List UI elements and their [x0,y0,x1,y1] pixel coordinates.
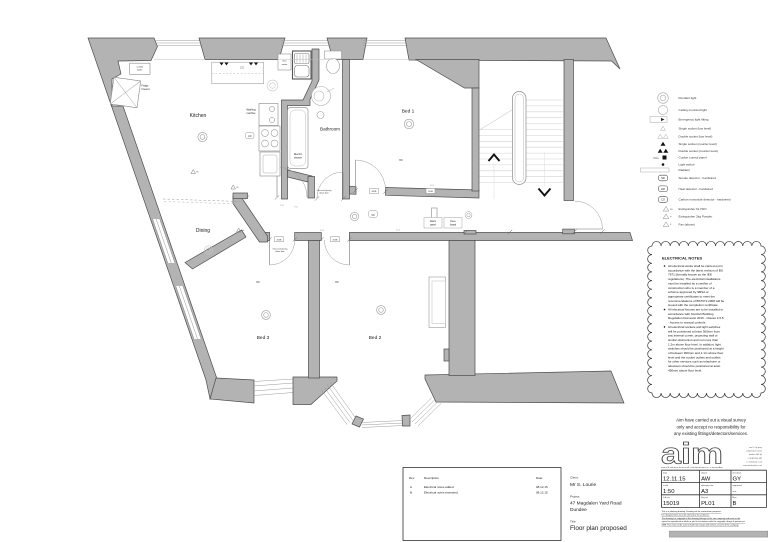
svg-text:for other services such as tel: for other services such as telephone or [668,360,721,364]
svg-text:WOB: WOB [372,191,377,193]
svg-text:SD: SD [661,176,665,180]
svg-text:Extinguisher 2kg Powder: Extinguisher 2kg Powder [679,215,713,219]
svg-text:PL01: PL01 [701,501,715,507]
svg-text:drawing size: drawing size [701,484,714,487]
svg-text:board: board [450,224,457,227]
svg-text:HD: HD [661,187,665,191]
svg-text:47 Magdalen Yard Road: 47 Magdalen Yard Road [570,501,622,507]
svg-text:All electrical works shall be: All electrical works shall be carried ou… [668,264,723,268]
svg-text:unit 3, city quay: unit 3, city quay [749,446,762,449]
svg-text:B: B [410,491,412,495]
svg-text:panel: panel [430,224,436,227]
svg-text:www.aimdundee.co.uk: www.aimdundee.co.uk [743,465,762,467]
svg-text:Date: Date [536,476,543,480]
svg-text:aim: aim [661,438,723,471]
svg-text:Bed 2: Bed 2 [369,335,382,341]
svg-text:Electrical notes amended.: Electrical notes amended. [424,491,459,495]
svg-text:SO/B: SO/B [277,239,282,241]
svg-text:BD: BD [399,158,403,162]
svg-text:Bed 3: Bed 3 [257,335,270,341]
svg-text:ELECTRICAL NOTES: ELECTRICAL NOTES [662,256,702,261]
svg-text:Title:: Title: [570,520,577,524]
svg-text:copied or reproduced in whole: copied or reproduced in whole or part in… [662,520,746,523]
svg-text:If in disagreement, must be re: If in disagreement, must be referred to … [662,513,710,516]
svg-text:This is a planning drawing. Dr: This is a planning drawing. Drawing not … [662,510,722,513]
svg-text:above door: above door [275,250,285,253]
svg-text:Bed 1: Bed 1 [402,109,415,115]
svg-text:CCo: CCo [653,156,659,160]
svg-text:Rev: Rev [409,476,415,480]
svg-text:t. 01382 564 987: t. 01382 564 987 [748,457,762,460]
svg-text:Dining: Dining [196,228,210,234]
svg-text:Pendant light: Pendant light [679,96,697,100]
svg-text:08.12.15: 08.12.15 [536,485,548,489]
svg-text:B: B [733,501,737,507]
svg-text:Job no.: Job no. [663,497,671,499]
svg-text:dundee dd1 3ja: dundee dd1 3ja [749,454,763,456]
svg-text:The drawings or copyright of t: The drawings or copyright of this drawin… [662,517,742,520]
svg-text:All electrical sockets and lig: All electrical sockets and light switche… [668,325,721,329]
svg-text:Extinguisher 6L H2O: Extinguisher 6L H2O [679,207,708,211]
svg-text:All electrical fixtures are to: All electrical fixtures are to be instal… [668,308,723,312]
svg-text:Light switch: Light switch [679,163,695,167]
svg-text:camperdown street: camperdown street [746,450,763,453]
svg-text:machine: machine [246,112,256,115]
svg-text:architectural interiors made: architectural interiors made [661,466,725,469]
svg-text:SO/B: SO/B [333,239,338,241]
svg-text:A3: A3 [701,489,709,495]
svg-text:any internal corner, projectin: any internal corner, projecting wall or [668,334,718,338]
svg-text:--: -- [733,489,737,495]
svg-text:Floor plan proposed: Floor plan proposed [570,525,627,532]
svg-text:Heat detector - hardwired: Heat detector - hardwired [679,187,714,191]
svg-text:Electrical notes added.: Electrical notes added. [424,485,455,489]
svg-text:1:50: 1:50 [663,489,675,495]
svg-text:450mm above floor level.: 450mm above floor level. [668,368,702,372]
svg-text:Fan (above): Fan (above) [679,222,695,226]
svg-text:above door: above door [319,192,329,195]
svg-text:Dundee: Dundee [570,507,587,513]
svg-text:Double socket (counter level): Double socket (counter level) [679,149,718,153]
svg-text:1988. This must not be used or: 1988. This must not be used or built fro… [662,524,740,527]
svg-text:HD: HD [248,134,252,138]
svg-text:Bathroom: Bathroom [320,127,340,132]
svg-text:boiler: boiler [137,69,143,72]
svg-text:Client:: Client: [570,476,579,480]
svg-text:08.12.15: 08.12.15 [536,491,548,495]
svg-text:1.2m above floor level. In add: 1.2m above floor level. In addition, lig… [668,342,721,346]
svg-text:AW: AW [701,477,711,483]
svg-text:e. mail@aim.co.uk: e. mail@aim.co.uk [746,461,762,463]
svg-text:Cooker control panel: Cooker control panel [679,156,707,160]
svg-text:drawn: drawn [701,472,708,475]
svg-text:scheme approved by SBSA or: scheme approved by SBSA or [668,290,709,294]
svg-text:GY: GY [733,477,742,483]
svg-text:Radiator: Radiator [679,168,691,172]
svg-text:Description: Description [424,476,439,480]
svg-text:meter: meter [282,63,288,66]
svg-text:checked: checked [733,473,742,475]
svg-text:Regulation Domestic 2010 - Cla: Regulation Domestic 2010 - Clause 4.6.5 [668,316,724,320]
svg-text:Drg no.: Drg no. [701,496,709,499]
svg-text:Smoke detector - hardwired: Smoke detector - hardwired [679,176,717,180]
svg-text:Kitchen: Kitchen [190,113,207,119]
svg-text:Rev.: Rev. [733,497,738,499]
svg-text:BD: BD [256,280,260,284]
svg-text:SO/B: SO/B [428,191,433,193]
svg-text:12.11.15: 12.11.15 [663,477,686,483]
svg-text:CO: CO [661,198,665,202]
svg-text:of between 900mm and 1.1m abov: of between 900mm and 1.1m above floor [668,351,723,355]
svg-text:Combi: Combi [137,67,144,69]
svg-text:scale: scale [663,485,669,487]
svg-text:Mr S. Lourie: Mr S. Lourie [570,482,596,488]
svg-text:only and accept no responsibil: only and accept no responsibility for [676,424,746,429]
svg-text:recommendations of BS7671:2008: recommendations of BS7671:2008 will be [668,299,725,303]
svg-text:approved: approved [733,484,743,487]
svg-text:Project:: Project: [570,495,580,499]
svg-text:Single socket (low level): Single socket (low level) [679,127,712,131]
svg-text:Single socket (counter level): Single socket (counter level) [679,142,717,146]
svg-text:Aim have carried out a visual: Aim have carried out a visual survey [676,418,747,423]
svg-text:shower: shower [294,157,302,160]
svg-text:Double socket (low level): Double socket (low level) [679,135,713,139]
svg-text:any existing fittings/detector: any existing fittings/detectors/services… [674,431,748,436]
svg-text:Carbon monoxide detector - har: Carbon monoxide detector - hardwired [679,198,731,202]
svg-text:Freezer: Freezer [142,88,150,91]
svg-text:SD: SD [371,213,375,217]
svg-text:must be installed by a certifi: must be installed by a certifier of [668,281,712,285]
svg-text:7671 (formally known as the IE: 7671 (formally known as the IEE [668,273,712,277]
svg-text:15019: 15019 [663,501,679,507]
svg-text:A: A [410,485,412,489]
svg-text:Emergency light fitting: Emergency light fitting [679,118,709,122]
svg-text:Ceiling mounted light: Ceiling mounted light [679,108,708,112]
svg-text:BD: BD [335,280,339,284]
